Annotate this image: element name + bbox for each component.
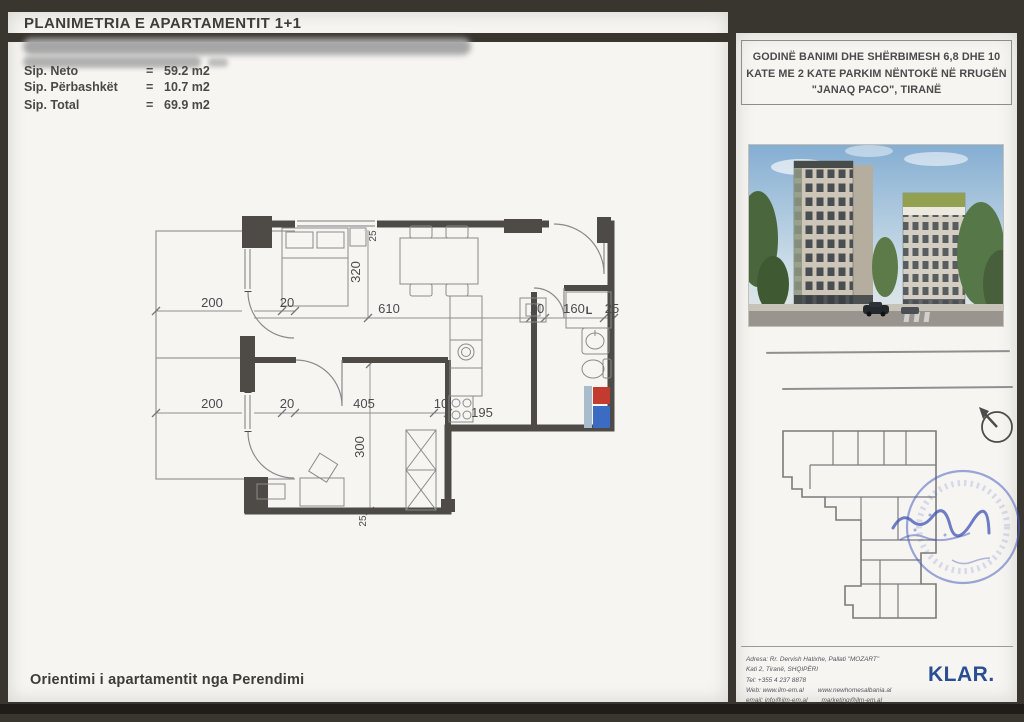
dimension-label: 405 — [353, 396, 375, 411]
area-row-perbashket: Sip. Përbashkët=10.7 m2 — [24, 80, 304, 94]
dining-table — [400, 226, 478, 296]
email-alt: marketing@ilm-em.al — [822, 697, 882, 704]
address-line: Kati 2, Tiranë, SHQIPËRI — [746, 665, 891, 675]
address-line: Tel: +355 4 237 8878 — [746, 676, 891, 686]
wardrobe — [406, 430, 436, 510]
dimension-label: 200 — [201, 396, 223, 411]
page-title: PLANIMETRIA E APARTAMENTIT 1+1 — [24, 15, 301, 32]
dimension-label: 300 — [352, 436, 367, 458]
dimension-label: 320 — [348, 261, 363, 283]
building-header-line: KATE ME 2 KATE PARKIM NËNTOKË NË RRUGËN — [742, 66, 1011, 83]
area-value: 10.7 m2 — [164, 80, 210, 94]
building-right — [903, 193, 965, 315]
web-alt: www.newhomesalbania.al — [818, 687, 892, 694]
columns — [240, 216, 611, 513]
area-label: Sip. Përbashkët — [24, 80, 146, 94]
site-plan-footprint — [783, 431, 936, 618]
dimension-label: 195 — [471, 405, 493, 420]
north-needle — [985, 414, 997, 427]
area-row-total: Sip. Total=69.9 m2 — [24, 98, 304, 112]
dimension-label: 25 — [605, 301, 619, 316]
dimension-lines — [156, 226, 614, 511]
walls — [248, 224, 611, 511]
floor-plan: 200 20 610 10 160 25 200 20 405 10 195 3… — [140, 205, 670, 575]
orientation-note: Orientimi i apartamentit nga Perendimi — [30, 672, 304, 688]
web-label: Web: www.ilm-em.al — [746, 687, 804, 694]
riser-red — [593, 387, 610, 404]
dimension-ticks — [152, 222, 618, 515]
dimension-label: 20 — [280, 295, 294, 310]
area-row-neto: Sip. Neto=59.2 m2 — [24, 64, 304, 78]
dimension-label: 10 — [530, 301, 544, 316]
wall-openings — [242, 217, 606, 478]
compass-icon — [979, 407, 1012, 442]
riser-blue — [593, 406, 610, 428]
dimension-label: 610 — [378, 301, 400, 316]
building-rendering — [749, 145, 1003, 326]
stove — [449, 396, 473, 422]
dimension-label: 160 — [563, 301, 585, 316]
bathroom-sink — [582, 328, 609, 354]
floor-plan-drawing: 200 20 610 10 160 25 200 20 405 10 195 3… — [140, 205, 670, 575]
address-top-border — [741, 646, 1013, 647]
area-value: 69.9 m2 — [164, 98, 210, 112]
scanned-document: PLANIMETRIA E APARTAMENTIT 1+1 Sip. Neto… — [0, 0, 1024, 722]
address-block: Adresa: Rr. Dervish Hatixhe, Pallati "MO… — [746, 655, 891, 706]
area-value: 59.2 m2 — [164, 64, 210, 78]
balcony-outline — [156, 231, 295, 479]
email-label: email: info@ilm-em.al — [746, 697, 808, 704]
laundry-label: L — [586, 305, 593, 317]
door-arcs — [248, 224, 604, 478]
building-header-line: "JANAQ PACO", TIRANË — [742, 82, 1011, 99]
dimension-label: 25 — [368, 230, 379, 242]
building-header: GODINË BANIMI DHE SHËRBIMESH 6,8 DHE 10 … — [741, 40, 1012, 105]
toilet — [582, 359, 611, 378]
address-line: Adresa: Rr. Dervish Hatixhe, Pallati "MO… — [746, 655, 891, 665]
klar-logo: KLAR. — [928, 663, 995, 687]
address-line: Web: www.ilm-em.alwww.newhomesalbania.al — [746, 686, 891, 696]
stamp-ring — [907, 471, 1019, 583]
shaft-strip — [584, 386, 592, 428]
left-page: PLANIMETRIA E APARTAMENTIT 1+1 Sip. Neto… — [8, 12, 728, 702]
kitchen-counter — [450, 296, 482, 396]
building-header-line: GODINË BANIMI DHE SHËRBIMESH 6,8 DHE 10 — [742, 49, 1011, 66]
right-page: GODINË BANIMI DHE SHËRBIMESH 6,8 DHE 10 … — [736, 33, 1017, 702]
site-plan-drawing — [774, 401, 1024, 643]
equals-sign: = — [146, 80, 164, 94]
censored-line-1 — [23, 38, 471, 55]
building-photo — [749, 145, 1003, 326]
separator-line — [766, 350, 1010, 354]
site-plan — [774, 401, 1024, 643]
dimension-label: 25 — [358, 515, 369, 527]
area-label: Sip. Total — [24, 98, 146, 112]
separator-line — [782, 386, 1013, 390]
area-label: Sip. Neto — [24, 64, 146, 78]
equals-sign: = — [146, 64, 164, 78]
dimension-label: 20 — [280, 396, 294, 411]
dimension-label: 200 — [201, 295, 223, 310]
address-line: email: info@ilm-em.almarketing@ilm-em.al — [746, 696, 891, 706]
equals-sign: = — [146, 98, 164, 112]
approval-stamp — [893, 471, 1019, 583]
dimension-label: 10 — [434, 396, 448, 411]
